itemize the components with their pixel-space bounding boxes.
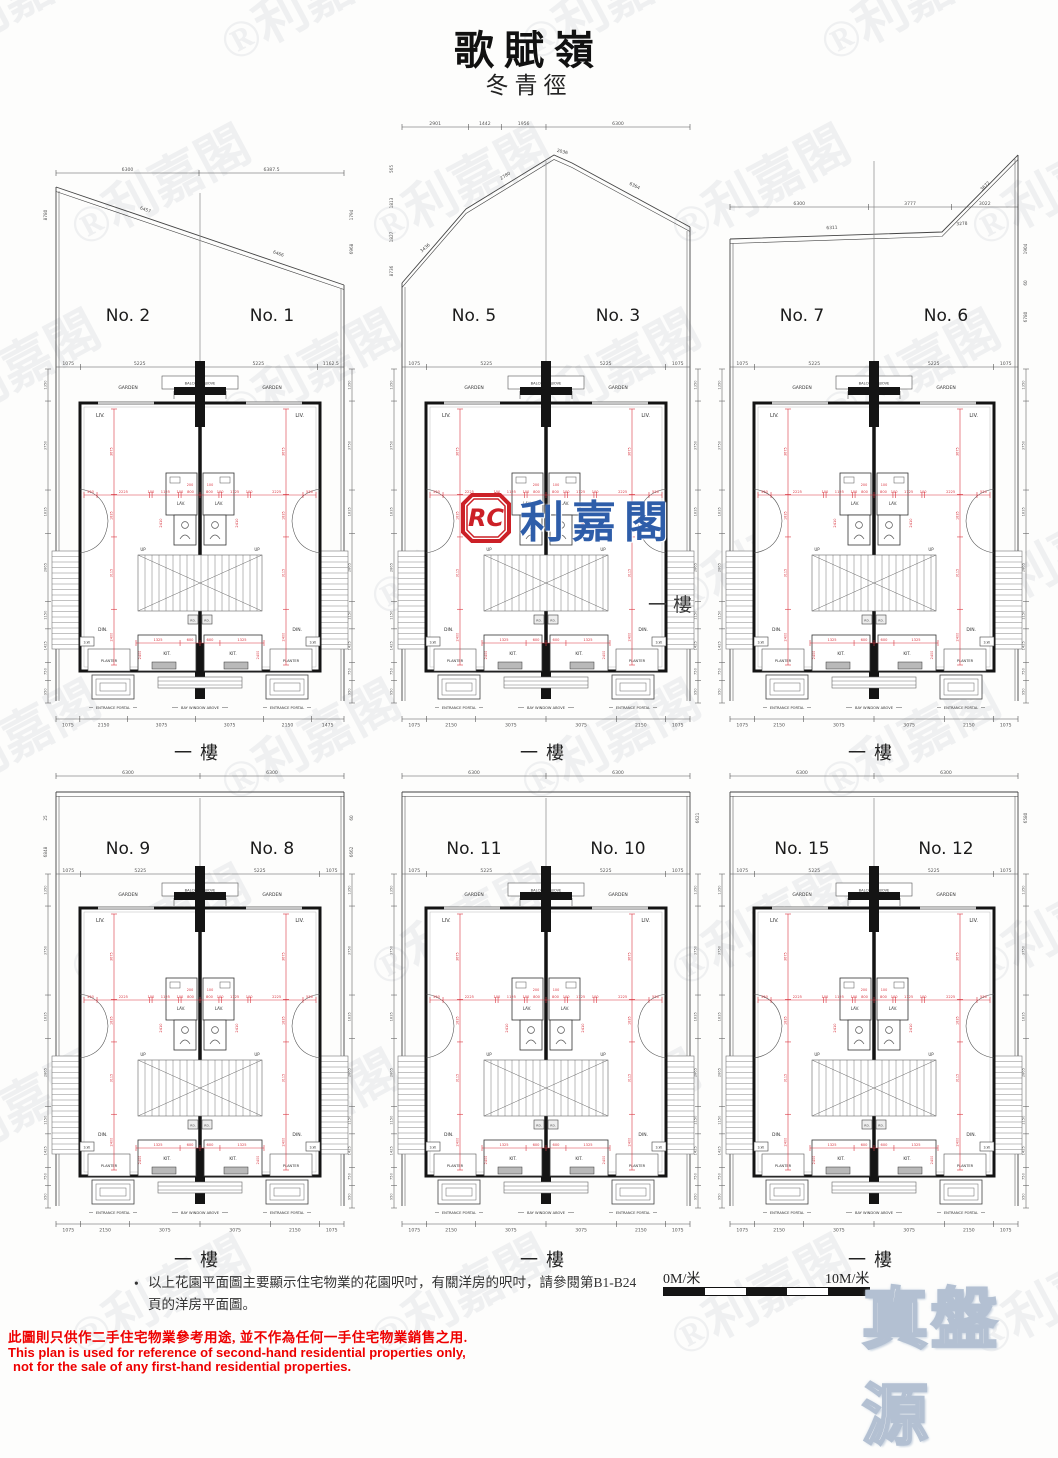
svg-text:1075: 1075 — [62, 1228, 74, 1234]
svg-text:3075: 3075 — [505, 1228, 517, 1234]
svg-text:P.D.: P.D. — [878, 619, 884, 623]
svg-text:LIV.: LIV. — [295, 918, 304, 924]
svg-text:3115: 3115 — [110, 1074, 114, 1083]
brochure-page: ®利嘉閣®利嘉閣®利嘉閣®利嘉閣®利嘉閣®利嘉閣®利嘉閣®利嘉閣®利嘉閣®利嘉閣… — [0, 0, 1058, 1366]
house-block: LIV.LIV.LAV.LAV.UPUPP.D.P.D.DIN.DIN.S.W.… — [718, 866, 1030, 1215]
svg-text:1075: 1075 — [672, 1228, 684, 1234]
svg-text:3675: 3675 — [628, 447, 632, 456]
svg-text:1350: 1350 — [1022, 380, 1026, 390]
svg-text:2901: 2901 — [429, 121, 441, 127]
svg-text:3750: 3750 — [390, 440, 394, 450]
svg-text:1075: 1075 — [1000, 868, 1012, 874]
svg-text:3115: 3115 — [628, 569, 632, 578]
svg-text:2865: 2865 — [348, 563, 352, 572]
middle-floor-label: 一樓 — [648, 590, 698, 617]
svg-text:2225: 2225 — [793, 490, 802, 494]
svg-text:3675: 3675 — [628, 952, 632, 961]
svg-text:LIV.: LIV. — [969, 918, 978, 924]
svg-text:No. 6: No. 6 — [924, 306, 968, 326]
svg-text:100: 100 — [217, 490, 225, 494]
svg-text:1835: 1835 — [456, 1016, 460, 1025]
svg-text:2865: 2865 — [1022, 1068, 1026, 1077]
svg-text:1835: 1835 — [110, 511, 114, 520]
svg-text:3750: 3750 — [44, 945, 48, 955]
svg-text:5225: 5225 — [600, 361, 612, 367]
svg-text:GARDEN: GARDEN — [262, 385, 281, 391]
svg-text:550: 550 — [306, 490, 314, 494]
svg-text:1425: 1425 — [1022, 1146, 1026, 1155]
svg-text:6780: 6780 — [1023, 311, 1028, 322]
svg-text:3750: 3750 — [718, 440, 722, 450]
svg-text:6300: 6300 — [796, 770, 808, 776]
svg-text:P.D.: P.D. — [878, 1124, 884, 1128]
svg-text:3075: 3075 — [229, 1228, 241, 1234]
svg-text:LAV.: LAV. — [889, 501, 897, 506]
svg-text:GARDEN: GARDEN — [936, 892, 955, 898]
svg-text:3675: 3675 — [456, 447, 460, 456]
svg-text:No. 1: No. 1 — [250, 306, 294, 326]
svg-text:KIT.: KIT. — [163, 651, 170, 656]
svg-text:1150: 1150 — [348, 610, 352, 620]
svg-text:2410: 2410 — [909, 1023, 913, 1033]
svg-text:BAY WINDOW ABOVE: BAY WINDOW ABOVE — [527, 706, 566, 710]
svg-text:3075: 3075 — [833, 1228, 845, 1234]
svg-text:600: 600 — [533, 638, 541, 642]
svg-text:2400: 2400 — [484, 651, 488, 660]
svg-text:2400: 2400 — [138, 651, 142, 660]
svg-text:GARDEN: GARDEN — [262, 892, 281, 898]
svg-text:ENTRANCE PORTAL: ENTRANCE PORTAL — [770, 706, 804, 710]
svg-text:600: 600 — [553, 638, 561, 642]
disclaimer-en-2: not for the sale of any first-hand resid… — [8, 1360, 468, 1374]
svg-text:No. 7: No. 7 — [780, 306, 824, 326]
svg-text:5225: 5225 — [808, 361, 820, 367]
svg-text:1325: 1325 — [237, 638, 246, 642]
svg-text:800: 800 — [880, 490, 888, 494]
svg-text:2225: 2225 — [465, 995, 474, 999]
svg-text:DIN.: DIN. — [292, 627, 302, 633]
svg-text:2400: 2400 — [138, 1156, 142, 1165]
svg-text:950: 950 — [44, 688, 48, 696]
svg-text:5225: 5225 — [928, 361, 940, 367]
svg-text:550: 550 — [652, 995, 660, 999]
svg-text:100: 100 — [176, 995, 184, 999]
svg-text:1350: 1350 — [694, 380, 698, 390]
svg-text:1350: 1350 — [390, 380, 394, 390]
svg-text:DIN.: DIN. — [772, 1132, 782, 1138]
svg-text:1125: 1125 — [904, 490, 913, 494]
svg-text:2225: 2225 — [946, 490, 955, 494]
svg-text:PLANTER: PLANTER — [101, 659, 118, 663]
svg-text:2150: 2150 — [635, 1228, 647, 1234]
svg-text:950: 950 — [1022, 688, 1026, 696]
svg-text:P.D.: P.D. — [190, 1124, 196, 1128]
svg-text:3675: 3675 — [784, 447, 788, 456]
svg-text:6387.5: 6387.5 — [263, 167, 279, 173]
svg-text:550: 550 — [433, 490, 441, 494]
svg-text:3115: 3115 — [784, 1074, 788, 1083]
svg-text:1125: 1125 — [161, 490, 170, 494]
svg-text:2400: 2400 — [282, 1138, 286, 1147]
svg-text:750: 750 — [718, 667, 722, 675]
svg-text:2150: 2150 — [635, 723, 647, 729]
svg-text:950: 950 — [718, 1193, 722, 1201]
svg-text:3115: 3115 — [456, 569, 460, 578]
svg-text:2225: 2225 — [793, 995, 802, 999]
svg-text:ENTRANCE PORTAL: ENTRANCE PORTAL — [96, 1211, 130, 1215]
svg-text:LIV.: LIV. — [641, 918, 650, 924]
svg-text:1325: 1325 — [153, 1143, 162, 1147]
svg-text:1835: 1835 — [628, 1016, 632, 1025]
svg-text:1075: 1075 — [408, 868, 420, 874]
svg-text:1125: 1125 — [230, 995, 239, 999]
svg-text:3022: 3022 — [979, 201, 991, 207]
svg-text:No. 15: No. 15 — [774, 839, 829, 859]
svg-text:3075: 3075 — [505, 723, 517, 729]
svg-text:600: 600 — [881, 638, 889, 642]
svg-text:1835: 1835 — [44, 507, 48, 516]
svg-text:100: 100 — [920, 995, 928, 999]
disclaimer-zh: 此圖則只供作二手住宅物業參考用途, 並不作為任何一手住宅物業銷售之用. — [8, 1326, 468, 1346]
svg-text:1075: 1075 — [672, 723, 684, 729]
svg-text:2410: 2410 — [581, 1023, 585, 1033]
svg-text:LIV.: LIV. — [96, 413, 105, 419]
svg-text:200: 200 — [187, 483, 193, 487]
svg-text:100: 100 — [821, 995, 829, 999]
svg-text:S.W.: S.W. — [656, 641, 663, 645]
svg-text:1075: 1075 — [408, 723, 420, 729]
svg-text:LIV.: LIV. — [770, 918, 779, 924]
floor-plan-No2-No1: 63006387.564576466878017946968No. 2No. 1… — [40, 115, 360, 765]
svg-text:100: 100 — [920, 490, 928, 494]
svg-text:6364: 6364 — [628, 181, 641, 192]
svg-text:GARDEN: GARDEN — [792, 385, 811, 391]
svg-text:1835: 1835 — [694, 507, 698, 516]
svg-text:1813: 1813 — [389, 197, 394, 208]
svg-text:S.W.: S.W. — [656, 1146, 663, 1150]
svg-text:6300: 6300 — [122, 167, 134, 173]
svg-text:100: 100 — [891, 995, 899, 999]
svg-text:1075: 1075 — [736, 361, 748, 367]
svg-text:6300: 6300 — [940, 770, 952, 776]
house-block: LIV.LIV.LAV.LAV.UPUPP.D.P.D.DIN.DIN.S.W.… — [718, 361, 1030, 710]
svg-text:1794: 1794 — [349, 209, 354, 220]
svg-text:DIN.: DIN. — [444, 627, 454, 633]
svg-text:1075: 1075 — [672, 868, 684, 874]
svg-text:950: 950 — [718, 688, 722, 696]
svg-text:2865: 2865 — [718, 1068, 722, 1077]
svg-text:1125: 1125 — [904, 995, 913, 999]
svg-text:5225: 5225 — [134, 361, 146, 367]
svg-text:KIT.: KIT. — [163, 1156, 170, 1161]
svg-text:2400: 2400 — [930, 1156, 934, 1165]
svg-text:1442: 1442 — [479, 121, 491, 127]
svg-text:1075: 1075 — [736, 1228, 748, 1234]
svg-text:1150: 1150 — [1022, 610, 1026, 620]
svg-text:2400: 2400 — [784, 1138, 788, 1147]
svg-text:600: 600 — [553, 1143, 561, 1147]
svg-text:DIN.: DIN. — [98, 1132, 108, 1138]
svg-text:5225: 5225 — [928, 868, 940, 874]
svg-text:3675: 3675 — [456, 952, 460, 961]
svg-text:800: 800 — [552, 995, 560, 999]
svg-text:1162.5: 1162.5 — [323, 361, 339, 367]
svg-text:2865: 2865 — [718, 563, 722, 572]
svg-text:600: 600 — [881, 1143, 889, 1147]
svg-text:2150: 2150 — [99, 1228, 111, 1234]
svg-text:1075: 1075 — [408, 361, 420, 367]
svg-text:1835: 1835 — [784, 511, 788, 520]
page-subtitle: 冬青徑 — [0, 66, 1058, 100]
svg-text:800: 800 — [533, 995, 541, 999]
svg-text:200: 200 — [533, 988, 539, 992]
svg-text:1150: 1150 — [718, 1115, 722, 1125]
svg-text:ENTRANCE PORTAL: ENTRANCE PORTAL — [616, 1211, 650, 1215]
svg-text:950: 950 — [390, 688, 394, 696]
svg-text:600: 600 — [187, 1143, 195, 1147]
svg-text:100: 100 — [207, 483, 213, 487]
svg-text:PLANTER: PLANTER — [629, 1164, 646, 1168]
svg-text:6300: 6300 — [266, 770, 278, 776]
svg-text:BAY WINDOW ABOVE: BAY WINDOW ABOVE — [527, 1211, 566, 1215]
svg-text:600: 600 — [533, 1143, 541, 1147]
svg-text:800: 800 — [206, 995, 214, 999]
rc-emblem-icon: RC — [460, 492, 512, 544]
svg-text:1075: 1075 — [1000, 1228, 1012, 1234]
svg-text:S.W.: S.W. — [758, 1146, 765, 1150]
svg-text:1075: 1075 — [1000, 361, 1012, 367]
svg-text:950: 950 — [694, 688, 698, 696]
svg-text:100: 100 — [850, 995, 858, 999]
svg-text:3115: 3115 — [956, 1074, 960, 1083]
svg-text:100: 100 — [881, 988, 887, 992]
svg-text:KIT.: KIT. — [903, 1156, 910, 1161]
svg-text:1325: 1325 — [499, 1143, 508, 1147]
svg-text:S.W.: S.W. — [430, 641, 437, 645]
svg-text:3075: 3075 — [903, 723, 915, 729]
svg-text:550: 550 — [980, 490, 988, 494]
svg-text:6300: 6300 — [612, 770, 624, 776]
scale-bar: 0M/米 10M/米 — [663, 1268, 893, 1296]
ricacorp-logo-text: 利嘉閣 — [520, 486, 676, 550]
svg-text:750: 750 — [390, 1172, 394, 1180]
note-text: 以上花園平面圖主要顯示住宅物業的花園呎吋，有關洋房的呎吋，請參閱第B1-B24頁… — [148, 1275, 636, 1312]
svg-text:UP: UP — [928, 547, 934, 552]
svg-text:3115: 3115 — [456, 1074, 460, 1083]
svg-text:DIN.: DIN. — [966, 1132, 976, 1138]
svg-text:3675: 3675 — [956, 952, 960, 961]
svg-text:No. 10: No. 10 — [590, 839, 645, 859]
svg-text:2865: 2865 — [694, 1068, 698, 1077]
svg-text:PLANTER: PLANTER — [957, 659, 974, 663]
svg-text:3750: 3750 — [348, 440, 352, 450]
svg-text:3115: 3115 — [628, 1074, 632, 1083]
svg-text:LAV.: LAV. — [215, 1006, 223, 1011]
svg-text:600: 600 — [861, 638, 869, 642]
svg-text:2400: 2400 — [628, 633, 632, 642]
svg-text:800: 800 — [187, 995, 195, 999]
svg-text:KIT.: KIT. — [575, 1156, 582, 1161]
svg-text:UP: UP — [928, 1052, 934, 1057]
svg-text:750: 750 — [1022, 667, 1026, 675]
svg-text:P.D.: P.D. — [550, 619, 556, 623]
svg-text:3750: 3750 — [694, 945, 698, 955]
svg-text:6466: 6466 — [272, 249, 285, 258]
svg-text:UP: UP — [254, 1052, 260, 1057]
svg-text:2400: 2400 — [456, 633, 460, 642]
svg-text:2400: 2400 — [930, 651, 934, 660]
svg-text:LAV.: LAV. — [851, 1006, 859, 1011]
plan-note: • 以上花園平面圖主要顯示住宅物業的花園呎吋，有關洋房的呎吋，請參閱第B1-B2… — [148, 1272, 644, 1317]
svg-text:ENTRANCE PORTAL: ENTRANCE PORTAL — [944, 1211, 978, 1215]
svg-text:6300: 6300 — [793, 201, 805, 207]
svg-text:2400: 2400 — [812, 1156, 816, 1165]
svg-text:1350: 1350 — [1022, 885, 1026, 895]
svg-text:6300: 6300 — [122, 770, 134, 776]
svg-text:ENTRANCE PORTAL: ENTRANCE PORTAL — [944, 706, 978, 710]
svg-text:3075: 3075 — [224, 723, 236, 729]
svg-text:3075: 3075 — [575, 723, 587, 729]
svg-text:P.D.: P.D. — [550, 1124, 556, 1128]
svg-text:2150: 2150 — [773, 1228, 785, 1234]
svg-text:BAY WINDOW ABOVE: BAY WINDOW ABOVE — [855, 1211, 894, 1215]
svg-text:100: 100 — [522, 995, 530, 999]
svg-text:750: 750 — [718, 1172, 722, 1180]
svg-text:3675: 3675 — [110, 952, 114, 961]
svg-text:LIV.: LIV. — [295, 413, 304, 419]
svg-text:8780: 8780 — [43, 209, 48, 220]
svg-text:550: 550 — [433, 995, 441, 999]
svg-text:P.D.: P.D. — [190, 619, 196, 623]
svg-text:600: 600 — [861, 1143, 869, 1147]
svg-text:6968: 6968 — [349, 243, 354, 254]
svg-text:ENTRANCE PORTAL: ENTRANCE PORTAL — [616, 706, 650, 710]
svg-text:60: 60 — [1023, 280, 1028, 286]
svg-text:100: 100 — [207, 988, 213, 992]
svg-text:100: 100 — [493, 995, 501, 999]
svg-text:1835: 1835 — [784, 1016, 788, 1025]
svg-text:8736: 8736 — [389, 265, 394, 276]
svg-text:ENTRANCE PORTAL: ENTRANCE PORTAL — [442, 706, 476, 710]
svg-text:100: 100 — [553, 988, 559, 992]
svg-text:1835: 1835 — [348, 1012, 352, 1021]
svg-text:3115: 3115 — [784, 569, 788, 578]
svg-text:100: 100 — [217, 995, 225, 999]
svg-text:950: 950 — [44, 1193, 48, 1201]
svg-text:PLANTER: PLANTER — [775, 659, 792, 663]
svg-text:1350: 1350 — [44, 380, 48, 390]
svg-text:PLANTER: PLANTER — [957, 1164, 974, 1168]
svg-text:2865: 2865 — [1022, 563, 1026, 572]
scale-bar-graphic — [663, 1287, 870, 1296]
svg-text:1325: 1325 — [583, 1143, 592, 1147]
svg-text:1425: 1425 — [694, 641, 698, 650]
svg-text:S.W.: S.W. — [310, 641, 317, 645]
svg-text:2150: 2150 — [445, 1228, 457, 1234]
svg-text:6300: 6300 — [468, 770, 480, 776]
svg-text:GARDEN: GARDEN — [118, 385, 137, 391]
house-block: LIV.LIV.LAV.LAV.UPUPP.D.P.D.DIN.DIN.S.W.… — [44, 361, 356, 710]
svg-text:ENTRANCE PORTAL: ENTRANCE PORTAL — [770, 1211, 804, 1215]
svg-text:5225: 5225 — [480, 868, 492, 874]
svg-text:3750: 3750 — [718, 945, 722, 955]
svg-text:PLANTER: PLANTER — [629, 659, 646, 663]
svg-text:1835: 1835 — [44, 1012, 48, 1021]
svg-text:LIV.: LIV. — [442, 413, 451, 419]
svg-text:1075: 1075 — [326, 1228, 338, 1234]
svg-text:1835: 1835 — [718, 507, 722, 516]
svg-text:2410: 2410 — [833, 1023, 837, 1033]
svg-text:2400: 2400 — [628, 1138, 632, 1147]
svg-text:2400: 2400 — [256, 1156, 260, 1165]
svg-text:3075: 3075 — [159, 1228, 171, 1234]
svg-text:PLANTER: PLANTER — [447, 1164, 464, 1168]
svg-text:ENTRANCE PORTAL: ENTRANCE PORTAL — [442, 1211, 476, 1215]
svg-text:1325: 1325 — [911, 1143, 920, 1147]
svg-text:1835: 1835 — [110, 1016, 114, 1025]
svg-text:1075: 1075 — [736, 868, 748, 874]
svg-text:DIN.: DIN. — [638, 627, 648, 633]
svg-text:750: 750 — [44, 1172, 48, 1180]
svg-text:1835: 1835 — [718, 1012, 722, 1021]
floor-level-label: 一樓 — [40, 1246, 360, 1272]
svg-text:KIT.: KIT. — [837, 651, 844, 656]
svg-text:6300: 6300 — [612, 121, 624, 127]
svg-text:800: 800 — [880, 995, 888, 999]
svg-text:1325: 1325 — [583, 638, 592, 642]
svg-text:3777: 3777 — [904, 201, 916, 207]
svg-text:600: 600 — [187, 638, 195, 642]
svg-text:S.W.: S.W. — [310, 1146, 317, 1150]
svg-text:1125: 1125 — [576, 995, 585, 999]
svg-text:550: 550 — [306, 995, 314, 999]
svg-text:1075: 1075 — [672, 361, 684, 367]
svg-text:950: 950 — [390, 1193, 394, 1201]
svg-text:2400: 2400 — [602, 651, 606, 660]
svg-text:750: 750 — [694, 1172, 698, 1180]
svg-text:200: 200 — [861, 988, 867, 992]
svg-text:600: 600 — [207, 638, 215, 642]
svg-text:3436: 3436 — [419, 242, 432, 254]
svg-text:5225: 5225 — [600, 868, 612, 874]
svg-text:1325: 1325 — [499, 638, 508, 642]
svg-text:3075: 3075 — [156, 723, 168, 729]
svg-text:1150: 1150 — [390, 610, 394, 620]
svg-text:P.D.: P.D. — [864, 1124, 870, 1128]
svg-text:800: 800 — [187, 490, 195, 494]
svg-text:1835: 1835 — [1022, 507, 1026, 516]
svg-text:UP: UP — [254, 547, 260, 552]
svg-text:2036: 2036 — [556, 148, 568, 157]
svg-text:100: 100 — [147, 995, 155, 999]
svg-text:100: 100 — [592, 995, 600, 999]
floor-plan-No7-No6: 6300377730226311327836721904606780No. 7N… — [714, 115, 1034, 765]
svg-text:550: 550 — [761, 995, 769, 999]
svg-text:100: 100 — [891, 490, 899, 494]
svg-text:P.D.: P.D. — [204, 619, 210, 623]
svg-text:100: 100 — [563, 995, 571, 999]
svg-text:565: 565 — [389, 165, 394, 173]
svg-text:2150: 2150 — [773, 723, 785, 729]
property-source-watermark: 真盤源 — [862, 1266, 1058, 1458]
floor-plan-No11-No10: 630063006621No. 11No. 101075522552251075… — [386, 756, 706, 1272]
svg-text:3675: 3675 — [282, 447, 286, 456]
svg-text:LAV.: LAV. — [215, 501, 223, 506]
svg-text:3675: 3675 — [956, 447, 960, 456]
svg-text:LAV.: LAV. — [851, 501, 859, 506]
svg-text:1150: 1150 — [44, 610, 48, 620]
svg-text:No. 9: No. 9 — [106, 839, 150, 859]
